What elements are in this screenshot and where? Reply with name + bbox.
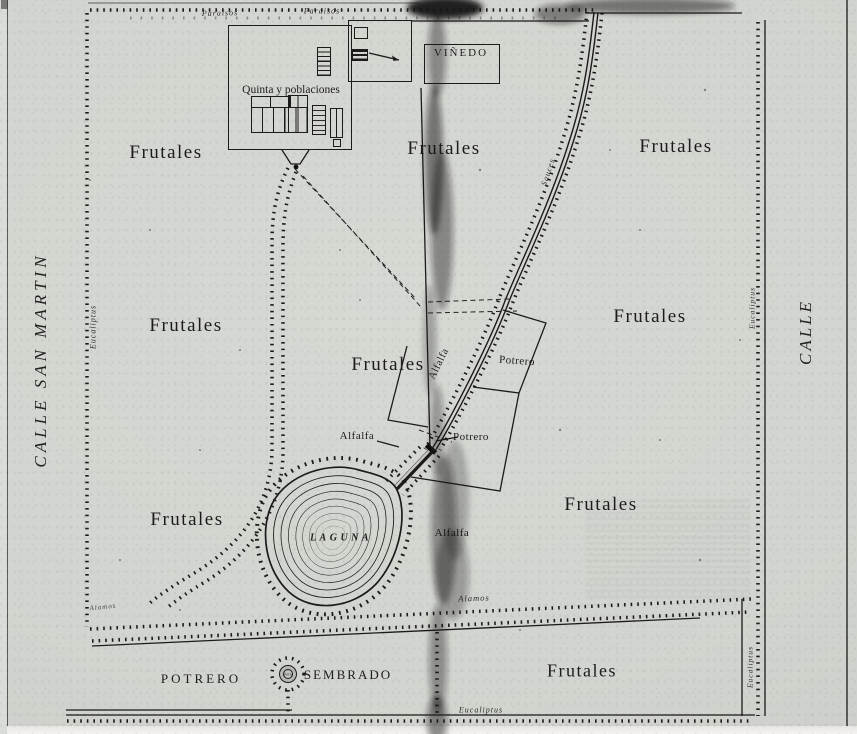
channel-dark xyxy=(396,450,432,488)
tree-row-strip-top-1 xyxy=(90,599,752,629)
dashed-lines xyxy=(295,169,517,442)
tree-label-paraisos-b: Paraisos xyxy=(304,7,340,16)
annex-shed-icon xyxy=(352,49,368,61)
noria-label: Noria xyxy=(283,672,294,677)
tree-label-eucaliptus-right-lower: Eucaliptus xyxy=(746,646,755,688)
building-hatched xyxy=(312,105,326,135)
map-linework xyxy=(0,0,857,734)
field-label-potrero-upper: Potrero xyxy=(499,354,536,368)
field-label-alfalfa-south: Alfalfa xyxy=(435,527,470,539)
area-label-frutales-east: Frutales xyxy=(613,306,686,328)
area-label-frutales-nw: Frutales xyxy=(129,142,202,164)
quinta-gate-notch xyxy=(282,150,309,164)
building-tall-block xyxy=(288,95,308,133)
area-label-frutales-north: Frutales xyxy=(407,138,480,160)
gate-mark xyxy=(294,165,299,170)
tree-label-eucaliptus-bottom: Eucaliptus xyxy=(459,706,503,715)
field-label-alfalfa-mid: Alfalfa xyxy=(340,430,375,442)
street-label-calle: CALLE xyxy=(796,299,816,365)
tree-label-alamos-mid: Alamos xyxy=(458,592,490,603)
area-label-frutales-strip: Frutales xyxy=(547,661,617,682)
area-label-frutales-sw: Frutales xyxy=(150,509,223,531)
field-label-sembrado: SEMBRADO xyxy=(304,667,392,683)
photo-corner-mark xyxy=(1,0,8,9)
street-label-calle-san-martin: CALLE SAN MARTIN xyxy=(31,252,51,467)
leader-alfalfa xyxy=(377,441,399,447)
laguna-label: LAGUNA xyxy=(310,533,372,544)
area-label-frutales-center: Frutales xyxy=(351,354,424,376)
photo-bottom-edge xyxy=(0,726,857,734)
tree-avenue-line-a xyxy=(150,168,288,603)
building-small xyxy=(330,108,343,138)
vinedo-label: VIÑEDO xyxy=(434,47,488,59)
tree-label-paraisos-a: Paraisos xyxy=(202,8,239,18)
ladder-building-icon xyxy=(317,47,331,76)
estate-map-scan: CALLE SAN MARTIN CALLE Quinta y poblacio… xyxy=(0,0,857,734)
field-label-potrero-strip: POTRERO xyxy=(161,671,241,687)
quinta-label: Quinta y poblaciones xyxy=(242,84,340,96)
channel-core xyxy=(395,449,431,487)
area-label-frutales-se: Frutales xyxy=(564,494,637,516)
strip-top-line xyxy=(92,618,700,646)
tree-label-eucaliptus-left: Eucaliptus xyxy=(89,305,98,349)
dashed-lane-b xyxy=(303,176,421,307)
tree-label-eucaliptus-right-upper: Eucaliptus xyxy=(748,287,757,329)
field-label-potrero-lower: Potrero xyxy=(453,431,489,443)
building-stub xyxy=(333,139,341,147)
annex-square xyxy=(354,27,368,39)
photo-left-edge xyxy=(0,0,7,734)
tree-row-strip-top-2 xyxy=(92,612,750,641)
area-label-frutales-ne: Frutales xyxy=(639,136,712,158)
dashed-cross-b xyxy=(428,311,517,313)
area-label-frutales-west: Frutales xyxy=(149,315,222,337)
